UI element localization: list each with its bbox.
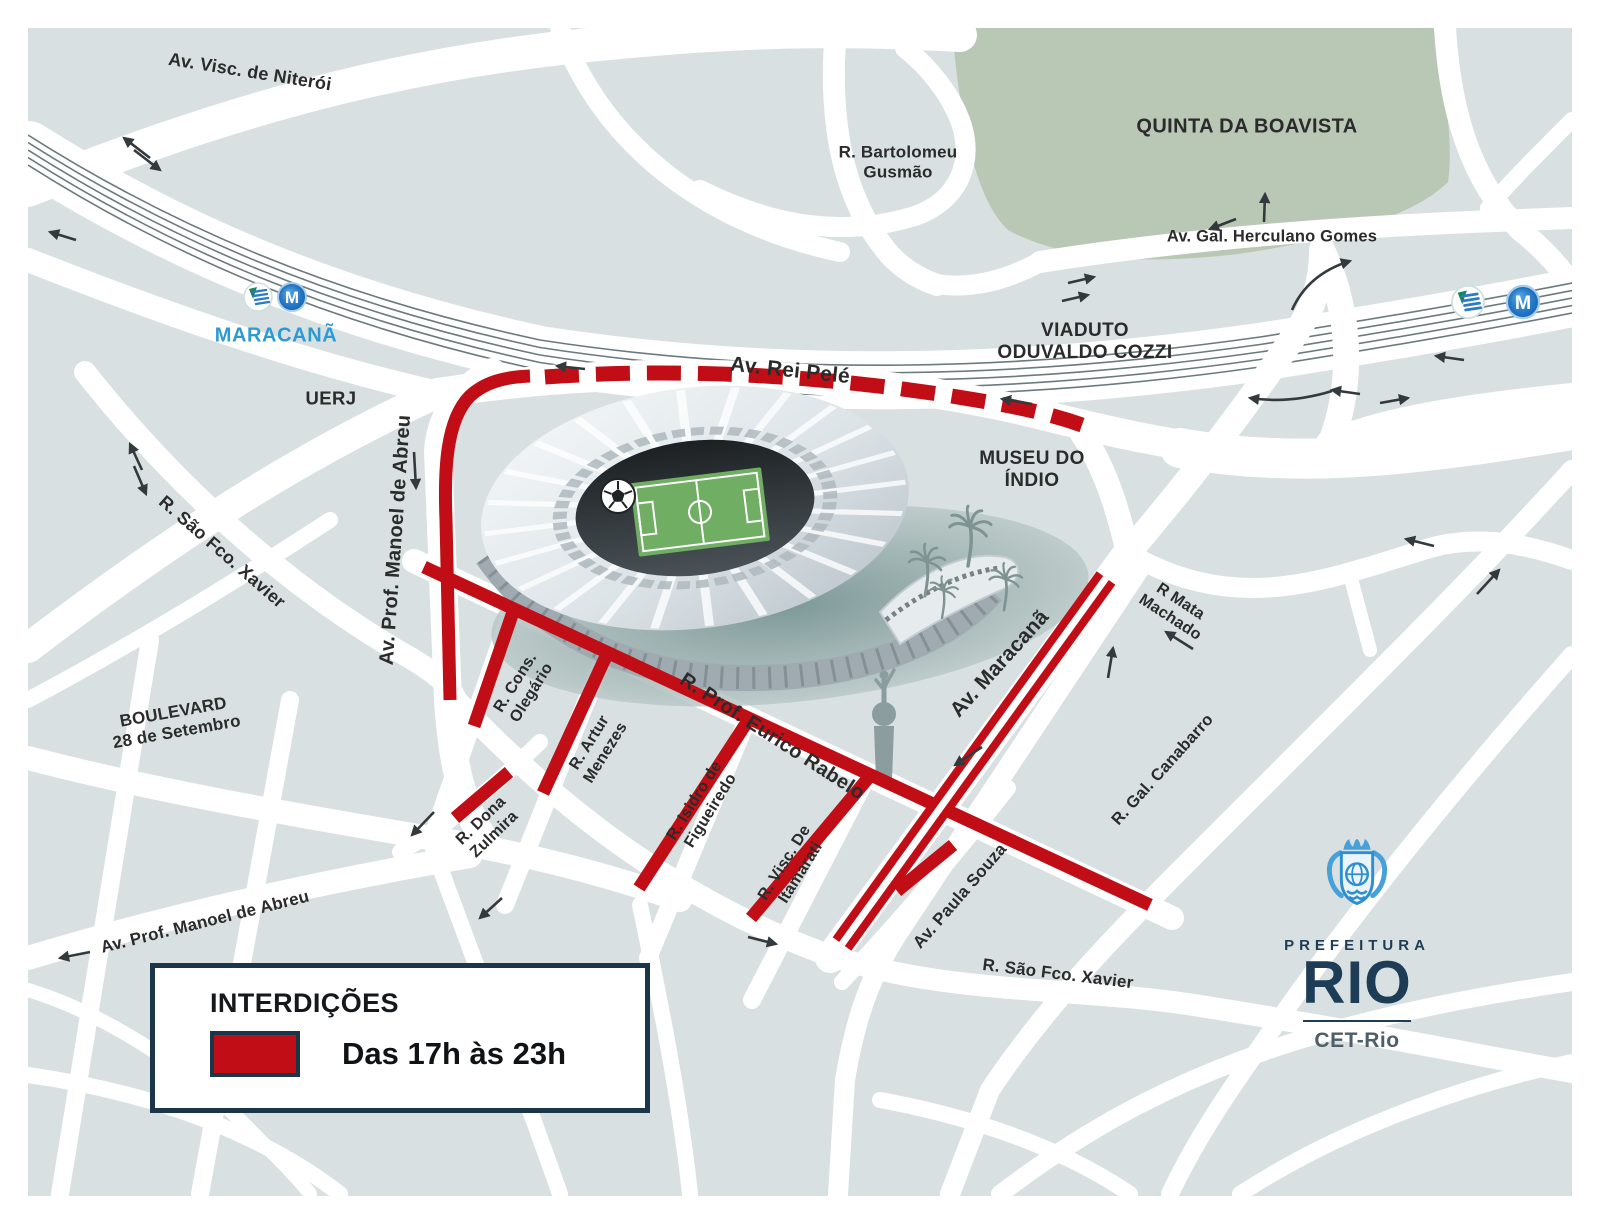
- supervia-train-icon: [1452, 286, 1484, 318]
- legend-row: Das 17h às 23h: [210, 1031, 645, 1077]
- street-label-r-bartolomeu-gusmao: R. Bartolomeu Gusmão: [839, 142, 958, 181]
- place-label-viaduto-oduvaldo-cozzi: VIADUTO ODUVALDO COZZI: [997, 320, 1172, 364]
- place-label-uerj: UERJ: [306, 387, 357, 408]
- traffic-closure-map: M M Av. Visc. de Niterói R. Bartolomeu G…: [0, 0, 1600, 1224]
- prefeitura-rio-logo: PREFEITURA RIO CET-Rio: [1277, 838, 1437, 1053]
- metro-icon: M: [278, 283, 306, 311]
- metro-icon: M: [1507, 286, 1539, 318]
- street-label-av-gal-herculano-gomes: Av. Gal. Herculano Gomes: [1167, 227, 1377, 246]
- supervia-train-icon: [244, 283, 272, 311]
- metro-letter: M: [285, 288, 299, 307]
- station-label-maracana: MARACANÃ: [215, 324, 338, 347]
- closure-color-swatch: [210, 1031, 300, 1077]
- place-label-museu-do-indio: MUSEU DO ÍNDIO: [979, 448, 1085, 492]
- metro-letter: M: [1515, 292, 1531, 314]
- place-label-quinta-da-boavista: QUINTA DA BOAVISTA: [1136, 115, 1357, 138]
- logo-divider: [1303, 1020, 1411, 1022]
- logo-rio-text: RIO: [1277, 954, 1437, 1011]
- rio-coat-of-arms-icon: [1315, 838, 1399, 928]
- legend: INTERDIÇÕES Das 17h às 23h: [150, 963, 650, 1113]
- logo-cet-rio-text: CET-Rio: [1277, 1029, 1437, 1053]
- legend-closure-label: Das 17h às 23h: [342, 1036, 566, 1072]
- legend-title: INTERDIÇÕES: [210, 988, 645, 1019]
- soccer-ball-icon: [601, 479, 635, 513]
